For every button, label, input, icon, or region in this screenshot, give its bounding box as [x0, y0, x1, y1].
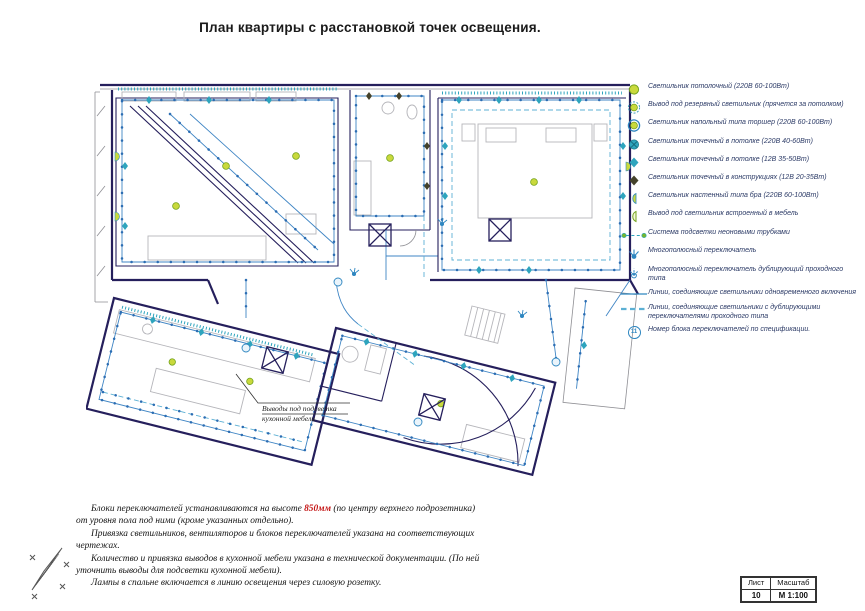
- legend: Светильник потолочный (220В 60-100Вт) Вы…: [620, 82, 860, 344]
- legend-item-label: Светильник точечный в потолке (220В 40-6…: [648, 137, 860, 146]
- legend-item-label: Номер блока переключателей по спецификац…: [648, 325, 860, 334]
- legend-item-label: Вывод под светильник встроенный в мебель: [648, 209, 860, 218]
- duplicate-line-icon: [620, 303, 648, 314]
- note-paragraph: Блоки переключателей устанавливаются на …: [76, 503, 480, 528]
- plan-annotation-line1: Выводы под подсветка: [262, 404, 372, 414]
- legend-item: Система подсветки неоновыми трубками: [620, 228, 860, 242]
- legend-item: Линии, соединяющие светильники одновреме…: [620, 288, 860, 299]
- wall-sconce-icon: [620, 191, 648, 205]
- legend-item-label: Многополюсный переключатель дублирующий …: [648, 265, 860, 283]
- sheet-label: Лист: [741, 577, 771, 589]
- neon-tube-icon: [620, 228, 648, 242]
- legend-item: Многополюсный переключатель дублирующий …: [620, 265, 860, 283]
- legend-item: 11 Номер блока переключателей по специфи…: [620, 325, 860, 339]
- plan-annotation: Выводы под подсветка кухонной мебели: [262, 404, 372, 425]
- legend-item-label: Светильник точечный в конструкциях (12В …: [648, 173, 860, 182]
- legend-item: Светильник потолочный (220В 60-100Вт): [620, 82, 860, 96]
- legend-item: Светильник настенный типа бра (220В 60-1…: [620, 191, 860, 205]
- switch-block-number-icon: 11: [620, 325, 648, 339]
- note-paragraph: Лампы в спальне включается в линию освещ…: [76, 577, 480, 589]
- legend-item: Вывод под резервный светильник (прячется…: [620, 100, 860, 114]
- legend-item-label: Многополюсный переключатель: [648, 246, 860, 255]
- drawing-title: План квартиры с расстановкой точек освещ…: [0, 20, 740, 35]
- legend-item-label: Светильник настенный типа бра (220В 60-1…: [648, 191, 860, 200]
- legend-item: Светильник точечный в потолке (220В 40-6…: [620, 137, 860, 151]
- multipole-switch-icon: [620, 246, 648, 261]
- ceiling-lamp-icon: [620, 82, 648, 96]
- legend-item-label: Светильник потолочный (220В 60-100Вт): [648, 82, 860, 91]
- spot-ceiling-12-icon: [620, 155, 648, 169]
- legend-item-label: Светильник напольный типа торшер (220В 6…: [648, 118, 860, 127]
- spot-ceiling-220-icon: [620, 137, 648, 151]
- reserve-lamp-icon: [620, 100, 648, 114]
- spot-construction-icon: [620, 173, 648, 187]
- north-compass-icon: [20, 540, 78, 602]
- legend-item: Многополюсный переключатель: [620, 246, 860, 261]
- legend-item: Вывод под светильник встроенный в мебель: [620, 209, 860, 223]
- legend-item: Светильник точечный в потолке (12В 35-50…: [620, 155, 860, 169]
- legend-item-label: Линии, соединяющие светильники с дублиру…: [648, 303, 860, 321]
- note-paragraph: Количество и привязка выводов в кухонной…: [76, 553, 480, 578]
- legend-item-label: Вывод под резервный светильник (прячется…: [648, 100, 860, 109]
- legend-item-label: Светильник точечный в потолке (12В 35-50…: [648, 155, 860, 164]
- title-block: Лист Масштаб 10 М 1:100: [740, 576, 817, 603]
- floor-lamp-icon: [620, 118, 648, 132]
- scale-label: Масштаб: [771, 577, 817, 589]
- sheet-number: 10: [741, 589, 771, 602]
- scale-value: М 1:100: [771, 589, 817, 602]
- furniture-lamp-icon: [620, 209, 648, 223]
- switch-block-number-badge: 11: [628, 326, 641, 339]
- multipole-switch-pass-icon: [620, 265, 648, 280]
- legend-item-label: Линии, соединяющие светильники одновреме…: [648, 288, 860, 297]
- note-text: Блоки переключателей устанавливаются на …: [91, 504, 304, 514]
- legend-item: Светильник точечный в конструкциях (12В …: [620, 173, 860, 187]
- plan-annotation-line2: кухонной мебели: [262, 414, 372, 424]
- notes: Блоки переключателей устанавливаются на …: [76, 503, 480, 590]
- legend-item: Линии, соединяющие светильники с дублиру…: [620, 303, 860, 321]
- legend-item: Светильник напольный типа торшер (220В 6…: [620, 118, 860, 132]
- legend-item-label: Система подсветки неоновыми трубками: [648, 228, 860, 237]
- note-paragraph: Привязка светильников, вентиляторов и бл…: [76, 528, 480, 553]
- simultaneous-line-icon: [620, 288, 648, 299]
- note-height-value: 850мм: [304, 504, 331, 514]
